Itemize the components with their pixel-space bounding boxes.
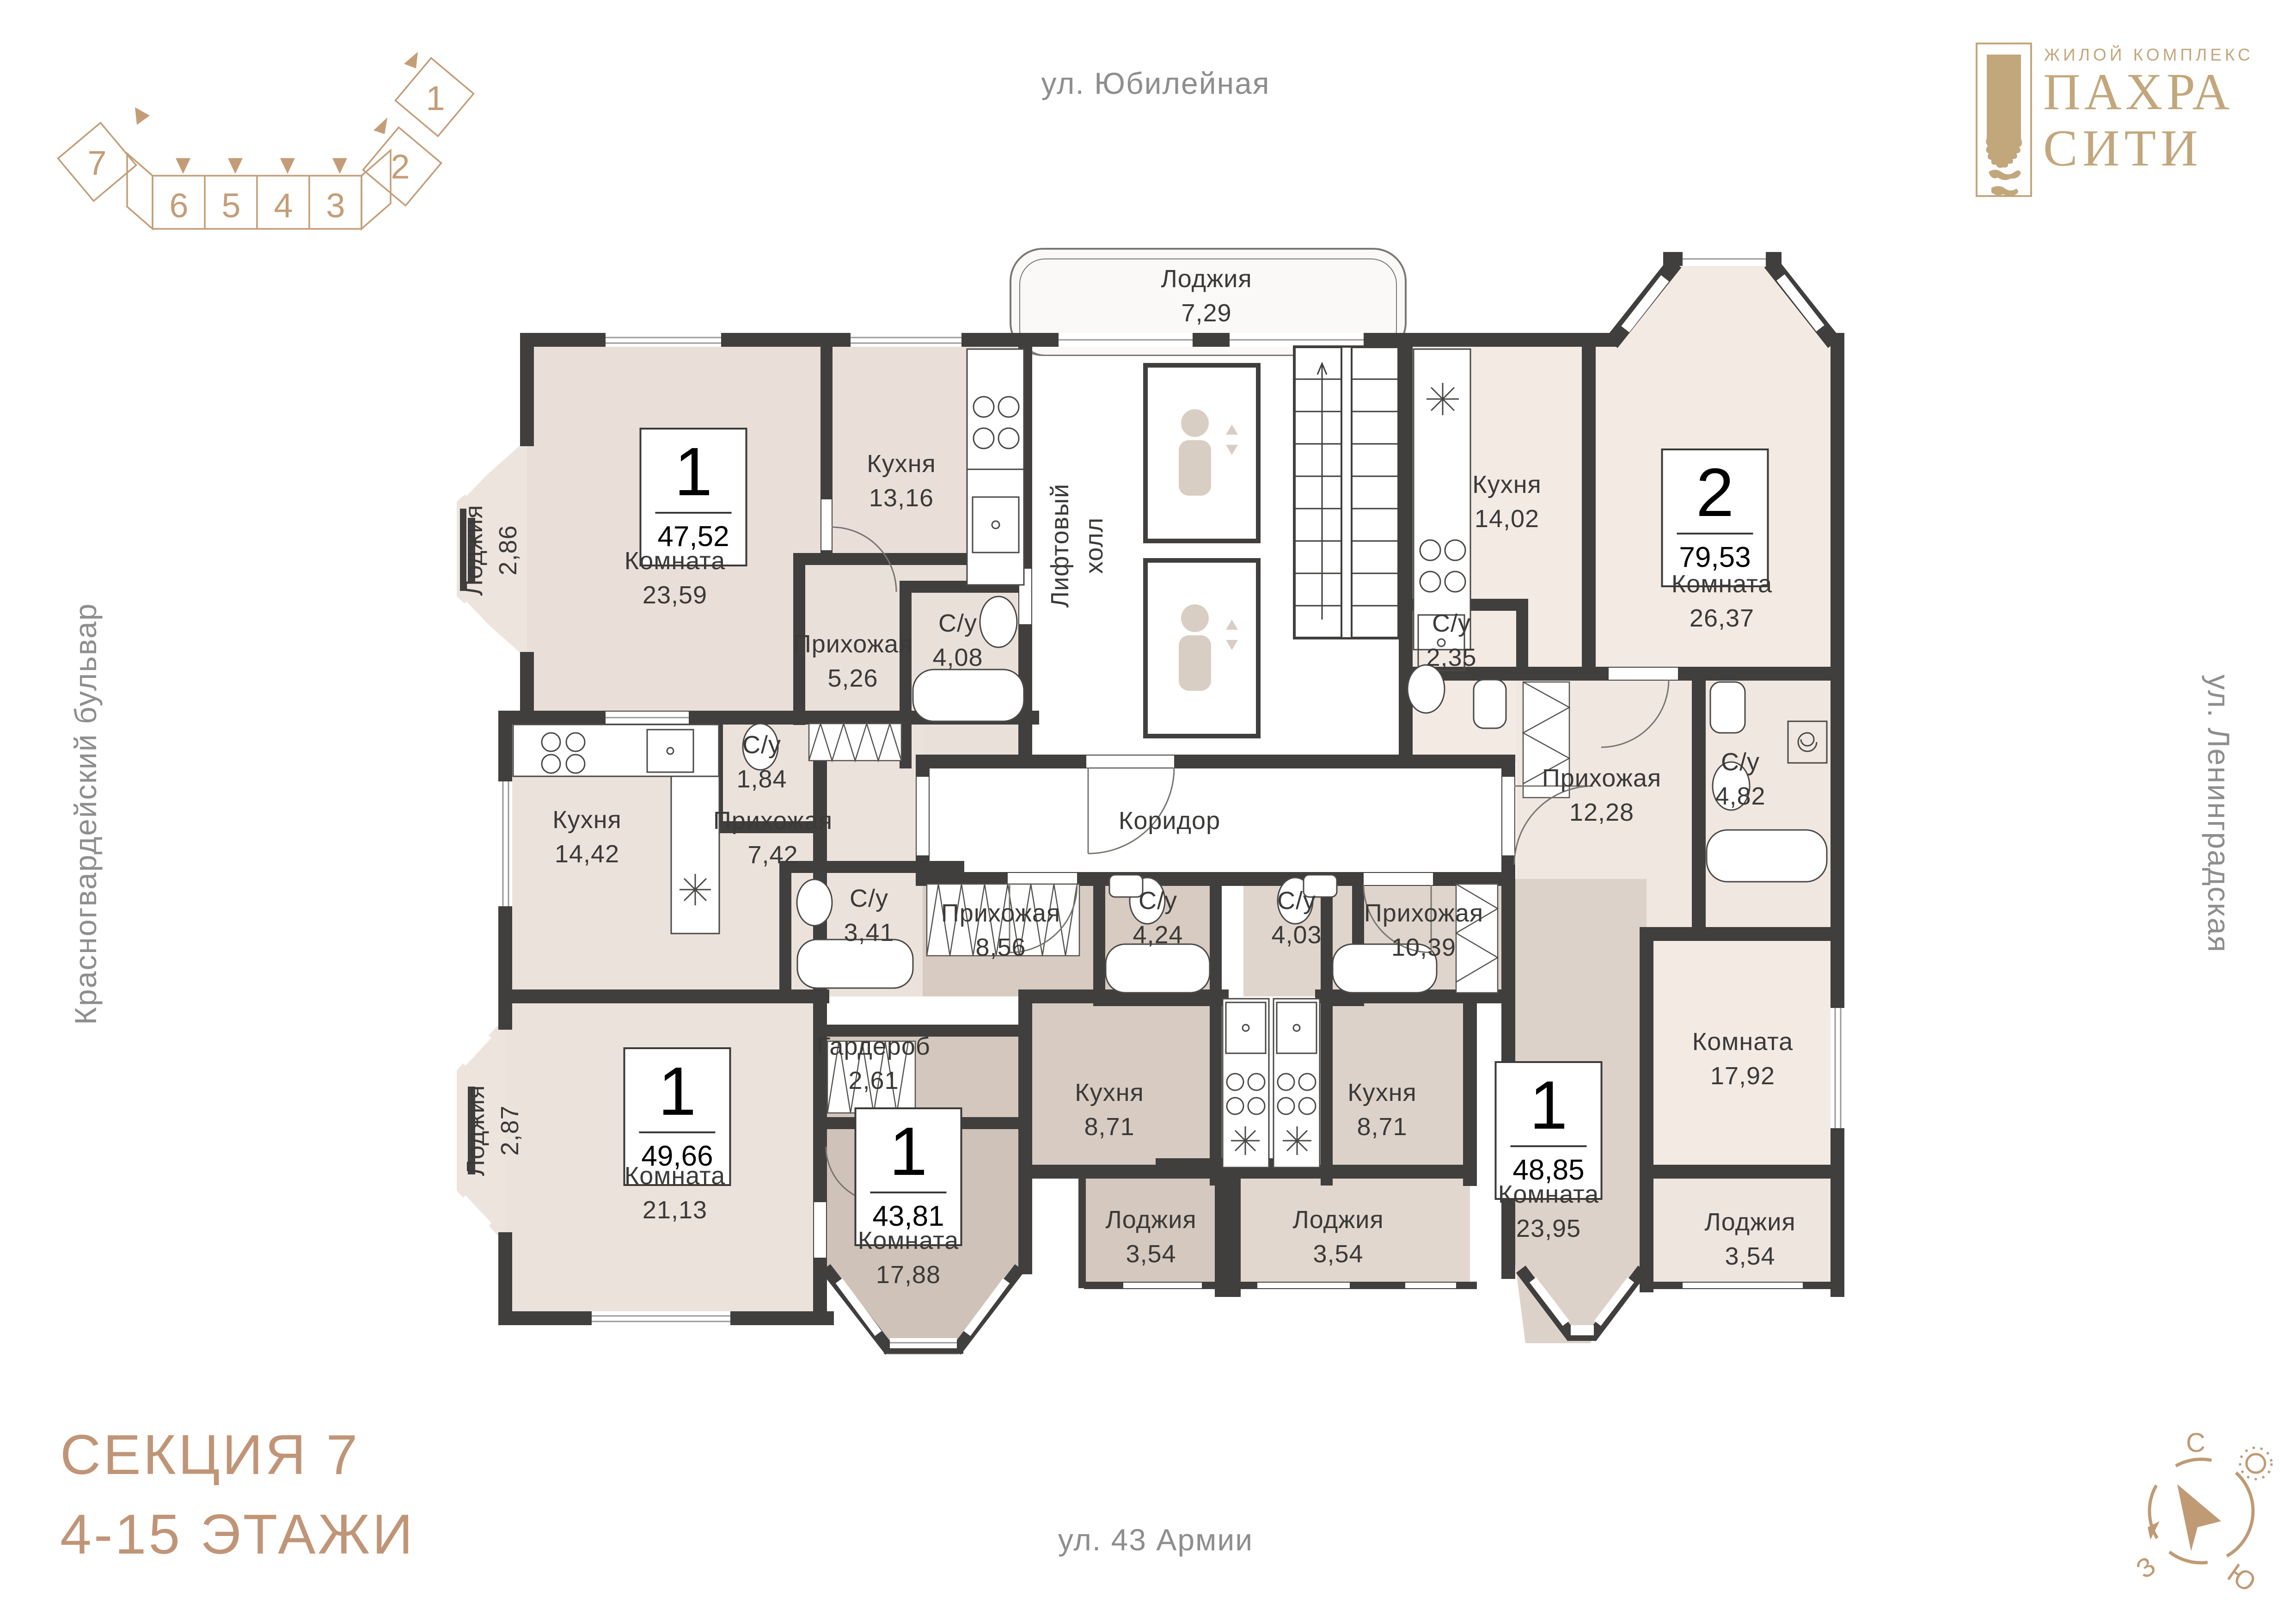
street-label-right: ул. Ленинградская <box>2201 675 2236 953</box>
room-label-lodzhiya-354-b: Лоджия3,54 <box>1292 1203 1384 1271</box>
building-section-diagram: 7 6 5 4 3 2 1 <box>28 23 490 264</box>
room-label-corridor: Коридор <box>1119 804 1220 838</box>
street-label-top: ул. Юбилейная <box>1041 66 1270 101</box>
svg-text:4: 4 <box>274 186 293 225</box>
logo-title-2: СИТИ <box>2043 120 2203 177</box>
room-label-komnata-2359: Комната23,59 <box>625 544 725 612</box>
stairs <box>1294 347 1399 638</box>
room-label-su-184: С/у1,84 <box>736 728 787 796</box>
room-label-komnata-2113: Комната21,13 <box>625 1159 725 1227</box>
room-label-lift-hall: Лифтовыйхолл <box>1043 484 1111 608</box>
street-label-bottom: ул. 43 Армии <box>1058 1522 1253 1557</box>
street-label-left: Красногвардейский бульвар <box>68 603 103 1025</box>
room-label-lodzhiya-354-right: Лоджия3,54 <box>1704 1205 1795 1273</box>
room-label-komnata-1788: Комната17,88 <box>858 1223 959 1292</box>
svg-text:6: 6 <box>169 186 188 225</box>
elevators <box>1145 365 1258 736</box>
page: 7 6 5 4 3 2 1 С З Ю ЖИЛОЙ КОМПЛЕКС ПАХРА… <box>0 0 2296 1622</box>
svg-text:1: 1 <box>426 79 445 117</box>
svg-text:7: 7 <box>87 144 106 182</box>
svg-text:5: 5 <box>221 186 240 225</box>
svg-text:2: 2 <box>391 147 410 186</box>
room-label-prihozhaya-1039: Прихожая10,39 <box>1364 896 1483 965</box>
logo-subtitle: ЖИЛОЙ КОМПЛЕКС <box>2044 45 2253 65</box>
room-label-su-482: С/у4,82 <box>1715 745 1765 813</box>
room-label-kuhnya-871-left: Кухня8,71 <box>1075 1075 1144 1144</box>
room-label-prihozhaya-1228: Прихожая12,28 <box>1542 761 1661 829</box>
room-label-prihozhaya-526: Прихожая5,26 <box>793 627 912 695</box>
floor-plan-sheet: 7 6 5 4 3 2 1 С З Ю ЖИЛОЙ КОМПЛЕКС ПАХРА… <box>0 0 2296 1622</box>
room-label-su-403: С/у4,03 <box>1271 884 1322 952</box>
room-label-komnata-2637: Комната26,37 <box>1671 567 1772 635</box>
svg-text:С: С <box>2186 1428 2205 1458</box>
logo-emblem-icon <box>1975 42 2044 208</box>
room-label-kuhnya-1316: Кухня13,16 <box>867 447 936 515</box>
room-label-su-235: С/у2,35 <box>1426 606 1476 675</box>
room-label-lodzhiya-287: Лоджия2,87 <box>459 1085 527 1176</box>
apartment-badge-79-53: 2 79,53 <box>1661 449 1769 587</box>
room-label-kuhnya-871-right: Кухня8,71 <box>1347 1075 1417 1144</box>
svg-text:3: 3 <box>326 186 345 225</box>
svg-text:Ю: Ю <box>2222 1558 2261 1598</box>
room-label-lodzhiya-729: Лоджия7,29 <box>1161 262 1252 330</box>
compass: С З Ю <box>2103 1415 2296 1609</box>
room-label-garderob-261: Гардероб2,61 <box>817 1029 931 1098</box>
room-label-lodzhiya-286: Лоджия2,86 <box>457 504 525 596</box>
section-title-line2: 4-15 ЭТАЖИ <box>60 1503 415 1566</box>
svg-text:З: З <box>2131 1551 2161 1585</box>
room-label-prihozhaya-856: Прихожая8,56 <box>941 896 1060 965</box>
section-title: СЕКЦИЯ 7 4-15 ЭТАЖИ <box>60 1415 415 1574</box>
room-label-kuhnya-1442: Кухня14,42 <box>552 803 622 871</box>
section-title-line1: СЕКЦИЯ 7 <box>60 1423 360 1486</box>
room-label-su-424: С/у4,24 <box>1133 884 1183 952</box>
room-label-komnata-2395: Комната23,95 <box>1498 1177 1599 1246</box>
room-label-su-341: С/у3,41 <box>844 881 894 950</box>
room-label-komnata-1792: Комната17,92 <box>1692 1025 1793 1093</box>
room-label-kuhnya-1402: Кухня14,02 <box>1472 467 1542 536</box>
logo-title-1: ПАХРА <box>2043 64 2234 120</box>
room-label-prihozhaya-742: Прихожая7,42 <box>713 804 833 872</box>
room-label-lodzhiya-354-a: Лоджия3,54 <box>1105 1203 1196 1271</box>
room-label-su-408: С/у4,08 <box>932 606 983 675</box>
